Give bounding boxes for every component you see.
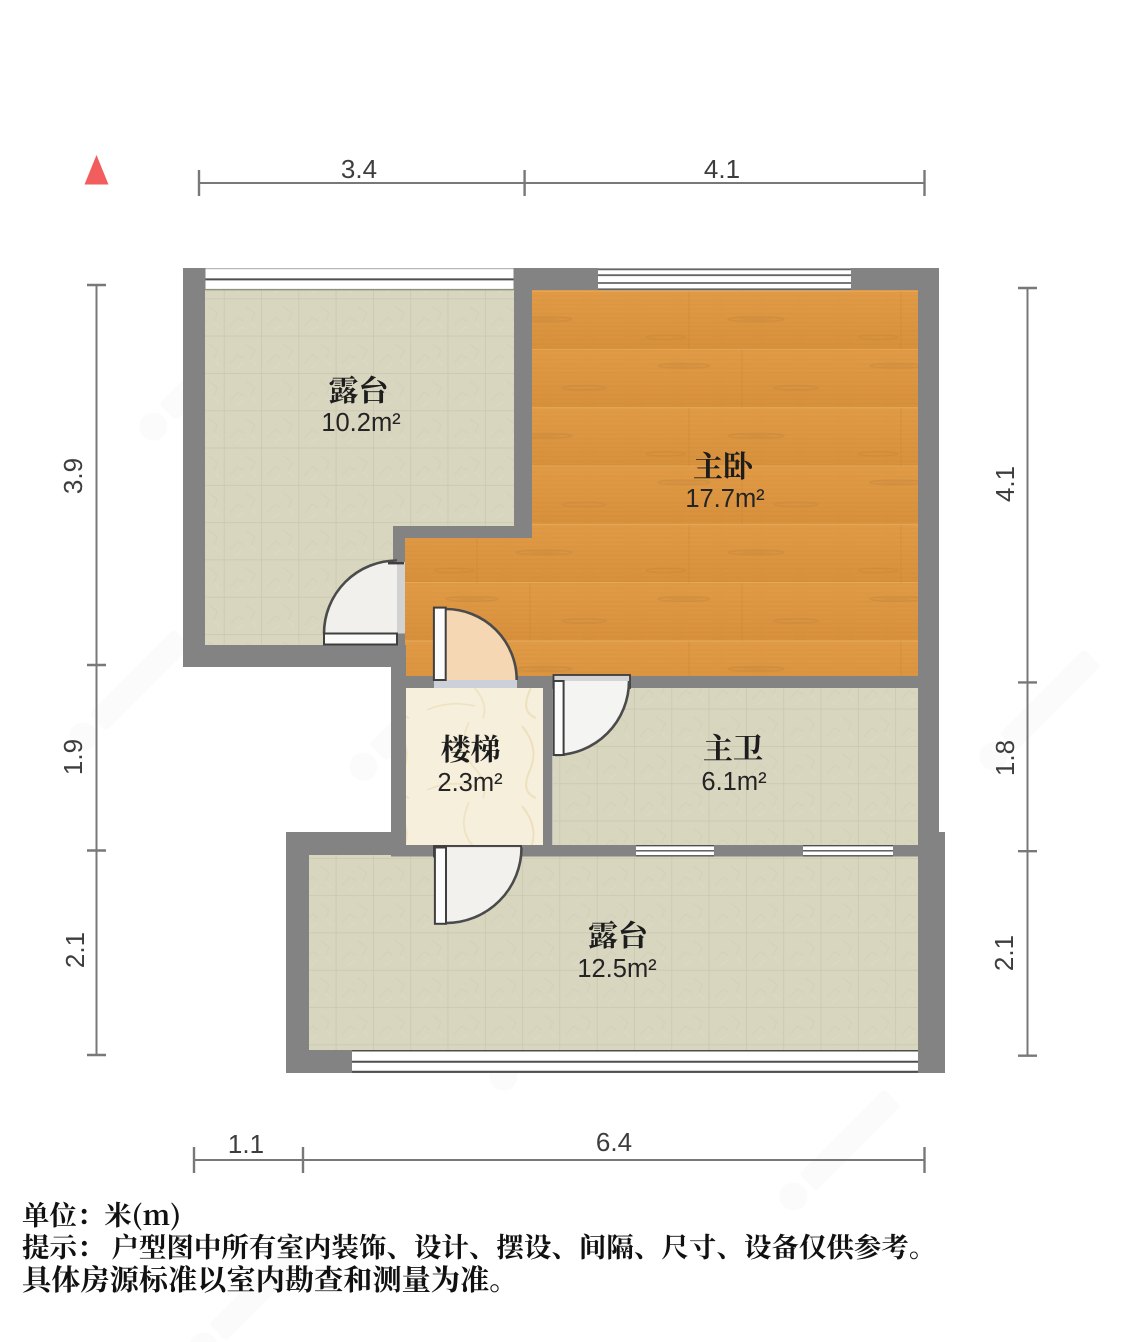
svg-text:4.1: 4.1: [990, 466, 1020, 502]
svg-text:2.1: 2.1: [60, 932, 90, 968]
svg-text:2.1: 2.1: [989, 935, 1019, 971]
svg-text:6.1m²: 6.1m²: [701, 768, 766, 796]
svg-text:3.4: 3.4: [341, 154, 377, 184]
svg-text:12.5m²: 12.5m²: [577, 955, 656, 983]
svg-text:1.9: 1.9: [58, 739, 88, 775]
svg-text:4.1: 4.1: [704, 154, 740, 184]
svg-text:1.8: 1.8: [990, 740, 1020, 776]
svg-text:17.7m²: 17.7m²: [685, 485, 764, 513]
svg-text:6.4: 6.4: [596, 1127, 632, 1157]
svg-text:2.3m²: 2.3m²: [437, 769, 502, 797]
svg-text:1.1: 1.1: [228, 1129, 264, 1159]
svg-text:10.2m²: 10.2m²: [321, 409, 400, 437]
svg-text:3.9: 3.9: [58, 458, 88, 494]
